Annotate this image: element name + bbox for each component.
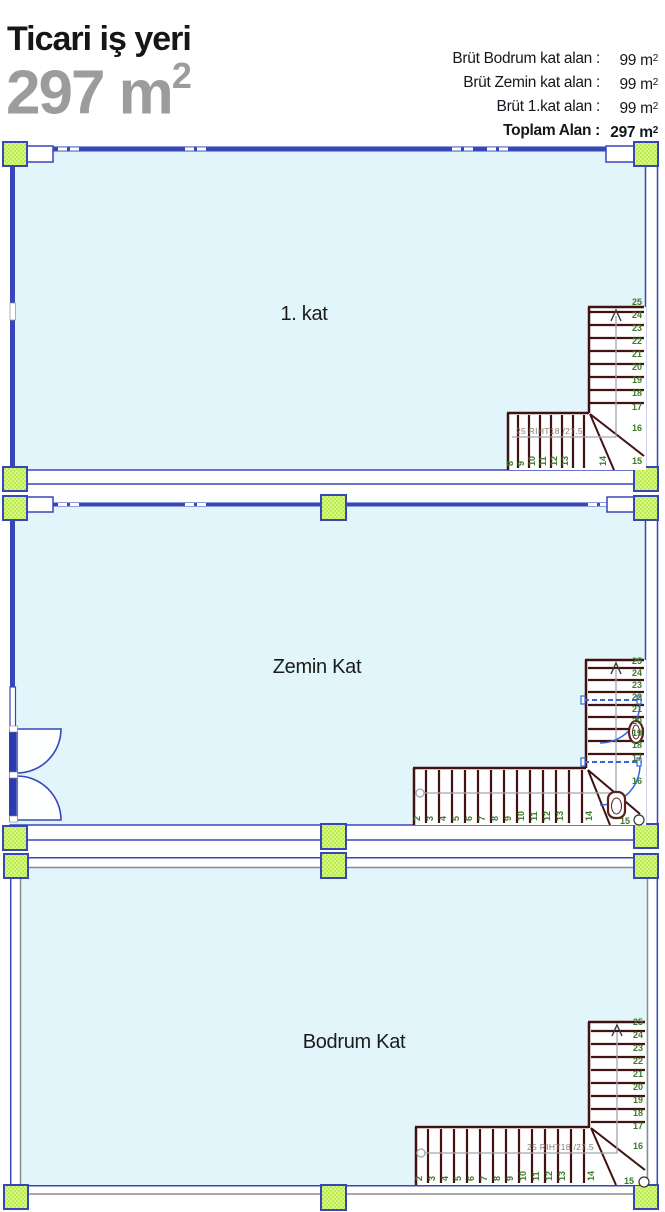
winder-number: 14 xyxy=(598,456,608,466)
stair-step-number: 3 xyxy=(427,1176,437,1181)
plan-kat1: 2524232221201918171615 8910111213 14 25 … xyxy=(3,142,658,491)
stair-step-number: 17 xyxy=(632,402,642,412)
stair-step-number: 8 xyxy=(492,1176,502,1181)
stair-step-number: 19 xyxy=(632,728,642,738)
end-step-number: 15 xyxy=(624,1176,634,1186)
stair-step-number: 12 xyxy=(549,456,559,466)
column xyxy=(634,467,658,491)
stair-step-number: 20 xyxy=(632,362,642,372)
stair-step-number: 18 xyxy=(632,388,642,398)
end-circle xyxy=(639,1177,649,1187)
winder-number: 14 xyxy=(584,811,594,821)
plan-zemin: 25242322212019181716 2345678910111213 14… xyxy=(3,495,658,850)
stair-step-number: 13 xyxy=(557,1171,567,1181)
column xyxy=(321,853,346,878)
beam xyxy=(607,497,634,512)
stair-step-number: 9 xyxy=(503,816,513,821)
stair-step-number: 25 xyxy=(632,656,642,666)
stair-step-number: 7 xyxy=(477,816,487,821)
stair-step-number: 23 xyxy=(632,323,642,333)
beam xyxy=(26,497,53,512)
column xyxy=(4,854,28,878)
stair-step-number: 17 xyxy=(633,1121,643,1131)
plan-bodrum: 25242322212019181716 2345678910111213 14… xyxy=(4,853,658,1210)
column xyxy=(634,824,658,848)
column xyxy=(3,142,27,166)
column xyxy=(321,1185,346,1210)
stair-step-number: 11 xyxy=(538,456,548,466)
stair-step-number: 18 xyxy=(633,1108,643,1118)
column xyxy=(634,142,658,166)
stair-step-number: 13 xyxy=(555,811,565,821)
stair-step-number: 8 xyxy=(490,816,500,821)
end-circle xyxy=(634,815,644,825)
stair-step-number: 7 xyxy=(479,1176,489,1181)
stair-step-number: 5 xyxy=(453,1176,463,1181)
door-hinge-marker xyxy=(10,816,18,822)
stair-step-number: 23 xyxy=(633,1043,643,1053)
stair-step-number: 21 xyxy=(633,1069,643,1079)
stair-step-number: 18 xyxy=(632,740,642,750)
wall-right xyxy=(646,502,658,841)
stair-step-number: 12 xyxy=(542,811,552,821)
stair-step-number: 21 xyxy=(632,349,642,359)
plan-label: Bodrum Kat xyxy=(303,1031,406,1053)
stair-step-number: 22 xyxy=(632,692,642,702)
column xyxy=(634,1185,658,1209)
stair-step-number: 2 xyxy=(414,1176,424,1181)
stair-step-number: 10 xyxy=(527,456,537,466)
door-hinge-marker xyxy=(10,726,18,732)
stair-step-number: 25 xyxy=(632,297,642,307)
window-marker-left xyxy=(10,303,16,320)
column xyxy=(634,854,658,878)
wc-door-hinge xyxy=(581,758,585,766)
stair-step-number: 20 xyxy=(632,716,642,726)
stair-step-number: 5 xyxy=(451,816,461,821)
door-hinge-marker xyxy=(10,772,18,778)
stair-step-number: 22 xyxy=(632,336,642,346)
stair-step-number: 16 xyxy=(632,776,642,786)
riser-label: 25 RIHT18 /27.5 xyxy=(516,426,583,436)
stair-step-number: 6 xyxy=(466,1176,476,1181)
stair-step-number: 11 xyxy=(529,811,539,821)
wall-right xyxy=(646,146,658,486)
stair-step-number: 6 xyxy=(464,816,474,821)
wc-door-hinge xyxy=(581,696,585,704)
column xyxy=(4,1185,28,1209)
column xyxy=(634,496,658,520)
stair-step-number: 10 xyxy=(518,1171,528,1181)
wall-bottom xyxy=(10,470,658,484)
stair-numbers-right: 25242322212019181716 xyxy=(633,1017,643,1151)
end-step-number: 15 xyxy=(620,816,630,826)
winder-number: 14 xyxy=(586,1171,596,1181)
stair-step-number: 15 xyxy=(632,456,642,466)
stair-step-number: 4 xyxy=(440,1176,450,1181)
stair-step-number: 12 xyxy=(544,1171,554,1181)
plan-label: Zemin Kat xyxy=(273,656,362,678)
stair-step-number: 4 xyxy=(438,816,448,821)
stair-step-number: 16 xyxy=(633,1141,643,1151)
stair-step-number: 22 xyxy=(633,1056,643,1066)
column xyxy=(3,826,27,850)
stair-step-number: 24 xyxy=(632,310,642,320)
stair-step-number: 20 xyxy=(633,1082,643,1092)
page: Ticari iş yeri 297 m2 Brüt Bodrum kat al… xyxy=(0,0,665,1212)
stair-step-number: 16 xyxy=(632,423,642,433)
column xyxy=(321,495,346,520)
stair-step-number: 3 xyxy=(425,816,435,821)
stair-step-number: 10 xyxy=(516,811,526,821)
stair-step-number: 23 xyxy=(632,680,642,690)
column xyxy=(3,496,27,520)
stair-step-number: 19 xyxy=(633,1095,643,1105)
floorplan-drawing: 2524232221201918171615 8910111213 14 25 … xyxy=(0,0,665,1212)
stair-step-number: 25 xyxy=(633,1017,643,1027)
beam xyxy=(606,146,634,162)
stair-step-number: 9 xyxy=(516,461,526,466)
beam xyxy=(26,146,53,162)
column xyxy=(321,824,346,849)
stair-step-number: 9 xyxy=(505,1176,515,1181)
column xyxy=(3,467,27,491)
plan-label: 1. kat xyxy=(280,303,328,325)
stair-step-number: 2 xyxy=(412,816,422,821)
stair-step-number: 24 xyxy=(632,668,642,678)
stair-step-number: 8 xyxy=(505,461,515,466)
stair-step-number: 13 xyxy=(560,456,570,466)
stair-step-number: 24 xyxy=(633,1030,643,1040)
riser-label: 25 RIHT18 /27.5 xyxy=(527,1142,594,1152)
stair-step-number: 19 xyxy=(632,375,642,385)
wall-left-window xyxy=(10,687,16,729)
stair-step-number: 17 xyxy=(632,753,642,763)
stair-step-number: 11 xyxy=(531,1171,541,1181)
stair-step-number: 21 xyxy=(632,704,642,714)
